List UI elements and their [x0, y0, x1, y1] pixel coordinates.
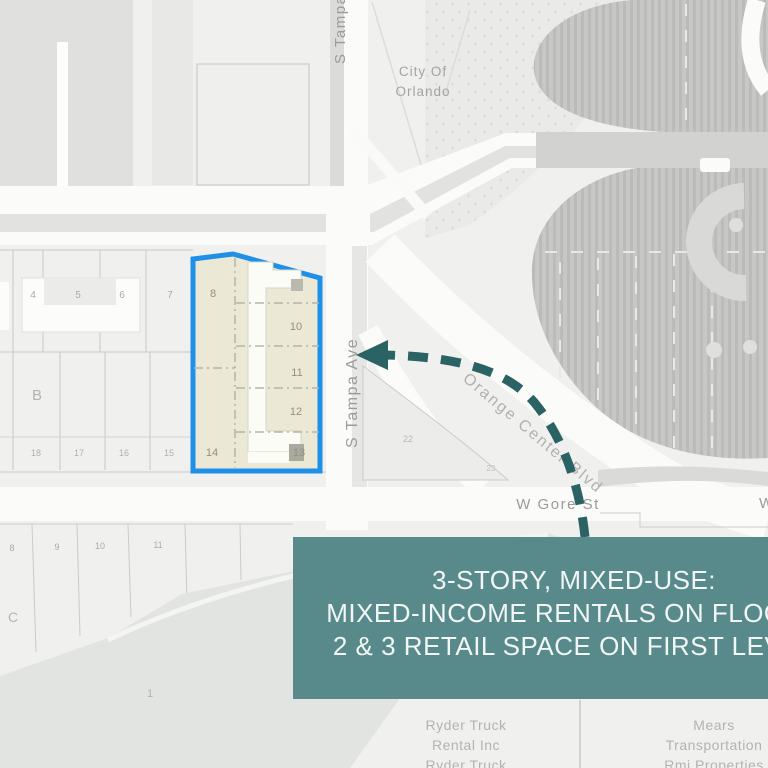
map-dot — [706, 342, 722, 358]
annotation-text-line3: 2 & 3 RETAIL SPACE ON FIRST LEVEL — [333, 631, 768, 661]
lot-number: 11 — [153, 540, 162, 550]
lot-number: 15 — [164, 448, 174, 458]
road-marking — [700, 158, 730, 172]
lot-number: 6 — [119, 290, 125, 301]
business-label: Rmi Properties — [664, 757, 764, 768]
city-of-orlando-label: City Of — [399, 64, 447, 79]
block-label: B — [32, 387, 42, 404]
lot-number: 18 — [31, 448, 41, 458]
alley-road — [57, 42, 68, 187]
map-dot — [743, 340, 757, 354]
lot-number: 1 — [147, 688, 153, 700]
lot-number: 10 — [95, 541, 105, 551]
s-tampa-ave-label-north: S Tampa Ave — [332, 0, 349, 64]
map-dot — [729, 218, 743, 232]
lot-number: 7 — [167, 290, 173, 301]
business-label: Ryder Truck — [426, 757, 507, 768]
street-label-fragment: W — [759, 495, 768, 512]
parcel-map-annotation-screenshot: 4 5 6 7 B 18 17 16 15 8 9 10 11 C 1 8 — [0, 0, 768, 768]
annotation-text-line2: MIXED-INCOME RENTALS ON FLOORS — [326, 598, 768, 628]
parcel-outline — [197, 64, 309, 185]
business-label: Rental Inc — [432, 737, 500, 753]
lot-number: 5 — [75, 290, 81, 301]
building-corner — [291, 279, 303, 291]
building-footprint — [248, 452, 290, 463]
highlighted-parcel: 8 10 11 12 13 14 — [193, 254, 320, 471]
road-median — [0, 214, 326, 232]
annotation-box: 3-STORY, MIXED-USE: MIXED-INCOME RENTALS… — [293, 537, 768, 699]
w-gore-st-road — [0, 487, 768, 521]
lot-number: 8 — [210, 288, 216, 300]
lot-number: 22 — [403, 434, 413, 444]
lot-number: 23 — [487, 464, 496, 473]
city-block — [152, 0, 193, 185]
block-label: C — [8, 609, 18, 625]
lot-number: 4 — [30, 290, 36, 301]
w-gore-st-label: W Gore St — [516, 496, 600, 513]
building-footprint — [0, 282, 9, 330]
lot-number: 14 — [206, 447, 218, 459]
business-label: Ryder Truck — [426, 717, 507, 733]
business-label: Mears — [693, 717, 734, 733]
lot-number: 10 — [290, 321, 302, 333]
lot-number: 12 — [290, 406, 302, 418]
lot-number: 8 — [9, 543, 14, 553]
business-label: Transportation — [666, 737, 763, 753]
lot-number: 11 — [291, 367, 302, 379]
lot-number: 9 — [54, 542, 59, 552]
city-of-orlando-label: Orlando — [395, 84, 450, 99]
lot-number: 17 — [74, 448, 84, 458]
annotation-text-line1: 3-STORY, MIXED-USE: — [432, 565, 716, 595]
road-band-east — [536, 132, 768, 168]
lot-number: 13 — [293, 447, 305, 459]
lot-number: 16 — [119, 448, 129, 458]
map-canvas: 4 5 6 7 B 18 17 16 15 8 9 10 11 C 1 8 — [0, 0, 768, 768]
